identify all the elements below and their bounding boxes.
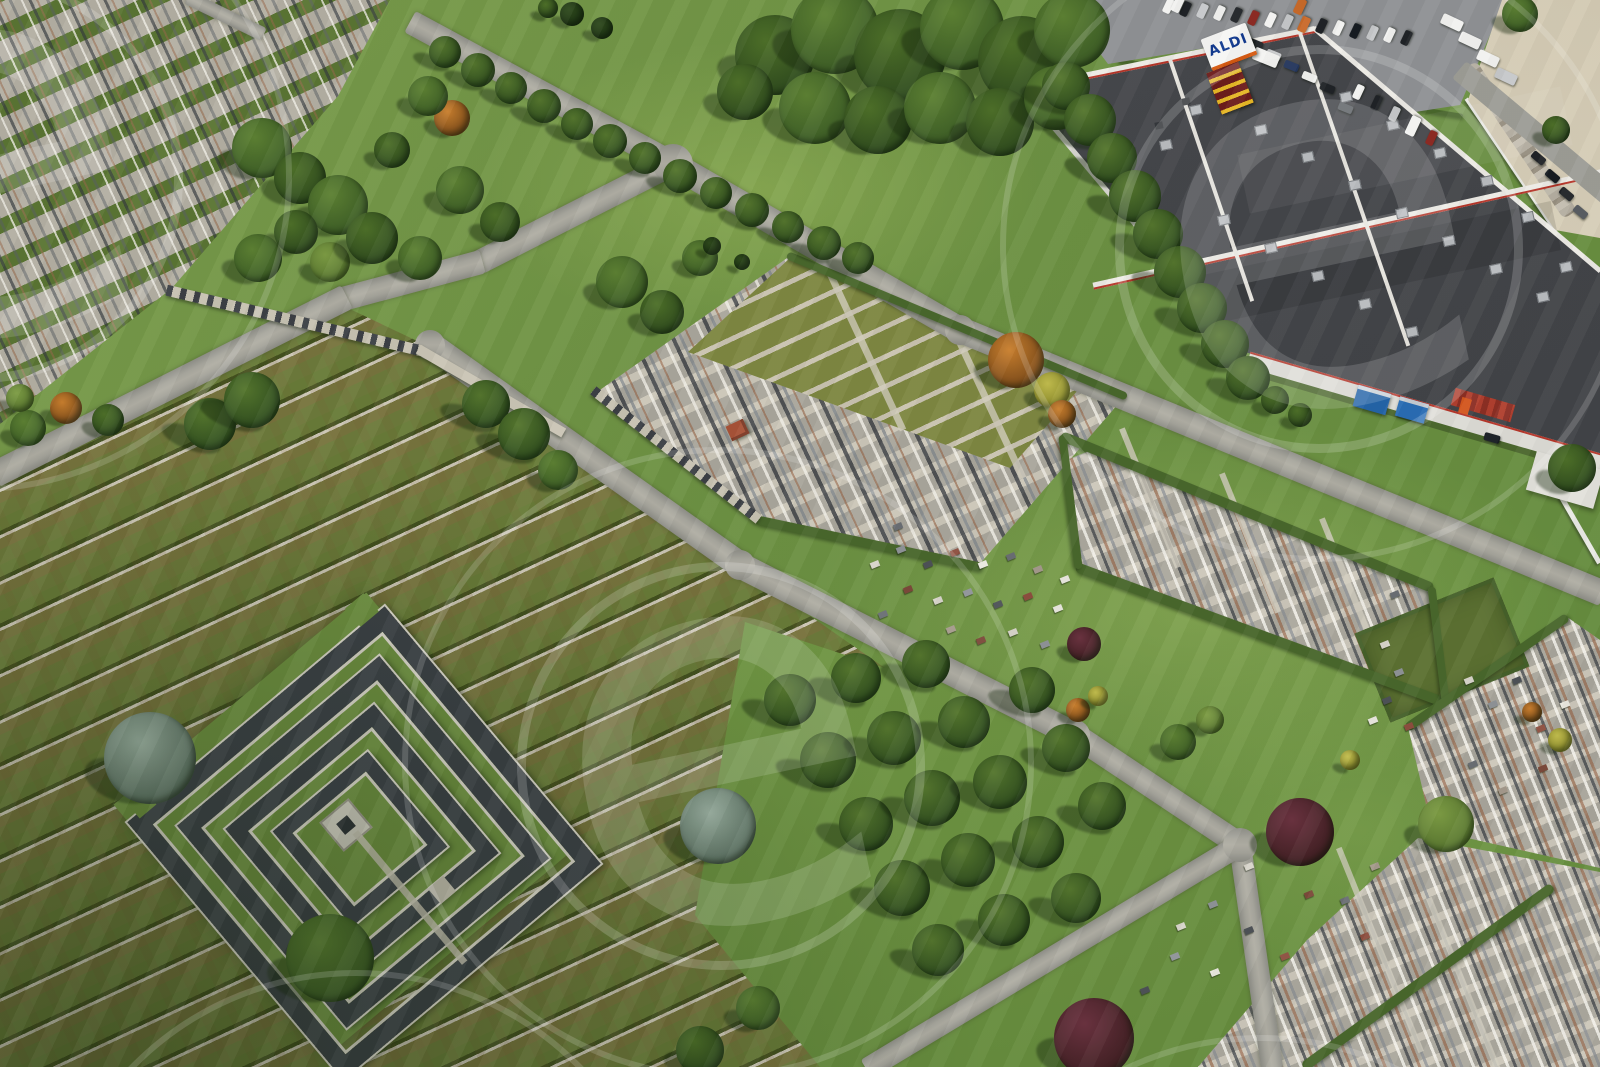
poplar-tree [429,36,461,68]
tree [1266,798,1334,866]
tree [676,1026,724,1067]
tree [1542,116,1570,144]
tree [6,384,34,412]
poplar-tree [1042,724,1090,772]
tree [50,392,82,424]
poplar-tree [663,159,697,193]
poplar-tree [938,696,990,748]
poplar-tree [904,770,960,826]
poplar-tree [912,924,964,976]
aldi-sign-text: ALDI [1206,30,1250,59]
poplar-tree [807,226,841,260]
tree [538,450,578,490]
poplar-tree [700,177,732,209]
tree [274,210,318,254]
tree [596,256,648,308]
poplar-tree [1078,782,1126,830]
poplar-tree [561,108,593,140]
tree [436,166,484,214]
poplar-tree [1051,873,1101,923]
tree [1340,750,1360,770]
poplar-tree [973,755,1027,809]
tree [286,914,374,1002]
tree [988,332,1044,388]
poplar-tree [224,372,280,428]
tree [591,17,613,39]
tree [1088,686,1108,706]
poplar-tree [527,89,561,123]
tree [374,132,410,168]
tree [734,254,750,270]
tree [1418,796,1474,852]
tree [1288,403,1312,427]
tree [1048,400,1076,428]
tree [408,76,448,116]
tree [1261,386,1289,414]
poplar-tree [772,211,804,243]
poplar-tree [867,711,921,765]
poplar-tree [941,833,995,887]
poplar-tree [1012,816,1064,868]
poplar-tree [593,124,627,158]
tree [640,290,684,334]
tree [398,236,442,280]
poplar-tree [1009,667,1055,713]
tree [92,404,124,436]
poplar-tree [902,640,950,688]
tree [234,234,282,282]
tree [1067,627,1101,661]
road-junction [725,550,755,580]
poplar-tree [629,142,661,174]
tree [1034,0,1110,68]
aerial-photo-cemetery: ALDI eeeee [0,0,1600,1067]
tree [104,712,196,804]
tree [717,64,773,120]
poplar-tree [978,894,1030,946]
tree [1196,706,1224,734]
tree [1548,728,1572,752]
poplar-tree [461,53,495,87]
tree [736,986,780,1030]
tree [560,2,584,26]
poplar-tree [735,193,769,227]
poplar-tree [842,242,874,274]
tree [703,237,721,255]
tree [1548,444,1596,492]
poplar-tree [498,408,550,460]
tree [680,788,756,864]
tree [346,212,398,264]
tree [480,202,520,242]
tree [1522,702,1542,722]
poplar-tree [495,72,527,104]
poplar-tree [831,653,881,703]
